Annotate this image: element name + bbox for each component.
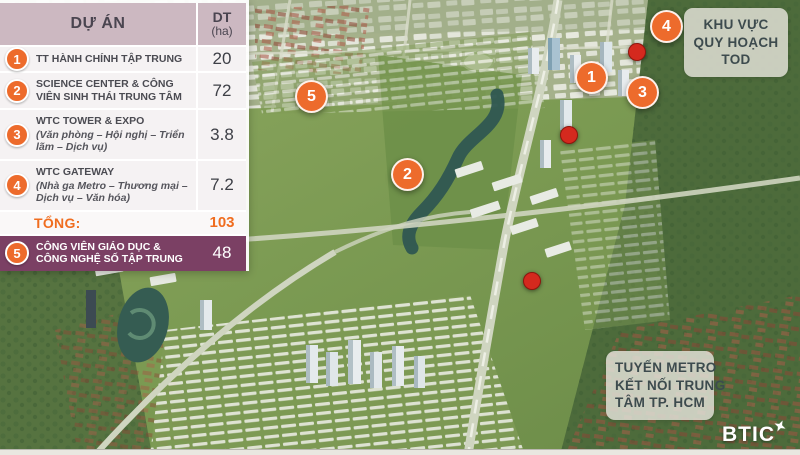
legend-row-3-area: 3.8 <box>198 125 246 145</box>
legend-row-3: 3 WTC TOWER & EXPO (Văn phòng – Hội nghị… <box>0 108 246 159</box>
legend-row-2: 2 SCIENCE CENTER & CÔNG VIÊN SINH THÁI T… <box>0 71 246 108</box>
legend-total-row: TỔNG: 103 <box>0 210 246 234</box>
legend-total-label: TỔNG: <box>34 215 196 231</box>
btic-logo-text: BTIC <box>722 424 775 445</box>
btic-star-icon <box>773 419 787 433</box>
masterplan-slide: DỰ ÁN DT (ha) 1 TT HÀNH CHÍNH TẬP TRUNG … <box>0 0 800 455</box>
legend-header-dt: DT <box>213 10 232 25</box>
legend-row-5-title: CÔNG VIÊN GIÁO DỤC & CÔNG NGHỆ SỐ TẬP TR… <box>34 236 196 271</box>
tod-line-3: TOD <box>693 51 779 69</box>
legend-row-5-area: 48 <box>198 243 246 263</box>
metro-station-dot-3 <box>523 272 541 290</box>
map-marker-4: 4 <box>650 10 683 43</box>
legend-header-unit: (ha) <box>211 25 232 38</box>
legend-row-2-area: 72 <box>198 81 246 101</box>
legend-row-5: 5 CÔNG VIÊN GIÁO DỤC & CÔNG NGHỆ SỐ TẬP … <box>0 234 246 271</box>
legend-badge-1: 1 <box>5 47 29 71</box>
legend-row-4: 4 WTC GATEWAY (Nhà ga Metro – Thương mại… <box>0 159 246 210</box>
map-marker-1: 1 <box>575 61 608 94</box>
metro-line-1: TUYẾN METRO <box>615 359 705 377</box>
map-marker-3: 3 <box>626 76 659 109</box>
legend-row-4-area: 7.2 <box>198 175 246 195</box>
legend-row-2-title: SCIENCE CENTER & CÔNG VIÊN SINH THÁI TRU… <box>34 73 196 108</box>
tod-line-2: QUY HOẠCH <box>693 34 779 52</box>
tod-zone-callout: KHU VỰC QUY HOẠCH TOD <box>684 8 788 77</box>
btic-logo: BTIC <box>722 424 790 445</box>
slide-bottom-strip <box>0 449 800 455</box>
tod-line-1: KHU VỰC <box>693 16 779 34</box>
metro-line-3: TÂM TP. HCM <box>615 394 705 412</box>
legend-badge-3: 3 <box>5 123 29 147</box>
metro-station-dot-1 <box>628 43 646 61</box>
metro-line-callout: TUYẾN METRO KẾT NỐI TRUNG TÂM TP. HCM <box>606 351 714 420</box>
map-marker-5: 5 <box>295 80 328 113</box>
map-marker-2: 2 <box>391 158 424 191</box>
legend-row-1: 1 TT HÀNH CHÍNH TẬP TRUNG 20 <box>0 45 246 71</box>
legend-total-value: 103 <box>198 214 246 231</box>
legend-badge-4: 4 <box>5 173 29 197</box>
legend-header: DỰ ÁN DT (ha) <box>0 3 246 45</box>
legend-row-4-title: WTC GATEWAY (Nhà ga Metro – Thương mại –… <box>34 161 196 210</box>
legend-row-4-subtitle: (Nhà ga Metro – Thương mại – Dịch vụ – V… <box>36 180 194 205</box>
legend-badge-5: 5 <box>5 241 29 265</box>
legend-row-3-title: WTC TOWER & EXPO (Văn phòng – Hội nghị –… <box>34 110 196 159</box>
legend-header-area: DT (ha) <box>198 3 246 45</box>
metro-station-dot-2 <box>560 126 578 144</box>
project-legend-table: DỰ ÁN DT (ha) 1 TT HÀNH CHÍNH TẬP TRUNG … <box>0 0 249 271</box>
metro-line-2: KẾT NỐI TRUNG <box>615 377 705 395</box>
legend-row-1-area: 20 <box>198 49 246 69</box>
legend-badge-2: 2 <box>5 79 29 103</box>
legend-row-3-subtitle: (Văn phòng – Hội nghị – Triển lãm – Dịch… <box>36 129 194 154</box>
legend-header-project: DỰ ÁN <box>0 3 196 45</box>
legend-row-1-title: TT HÀNH CHÍNH TẬP TRUNG <box>34 48 196 71</box>
